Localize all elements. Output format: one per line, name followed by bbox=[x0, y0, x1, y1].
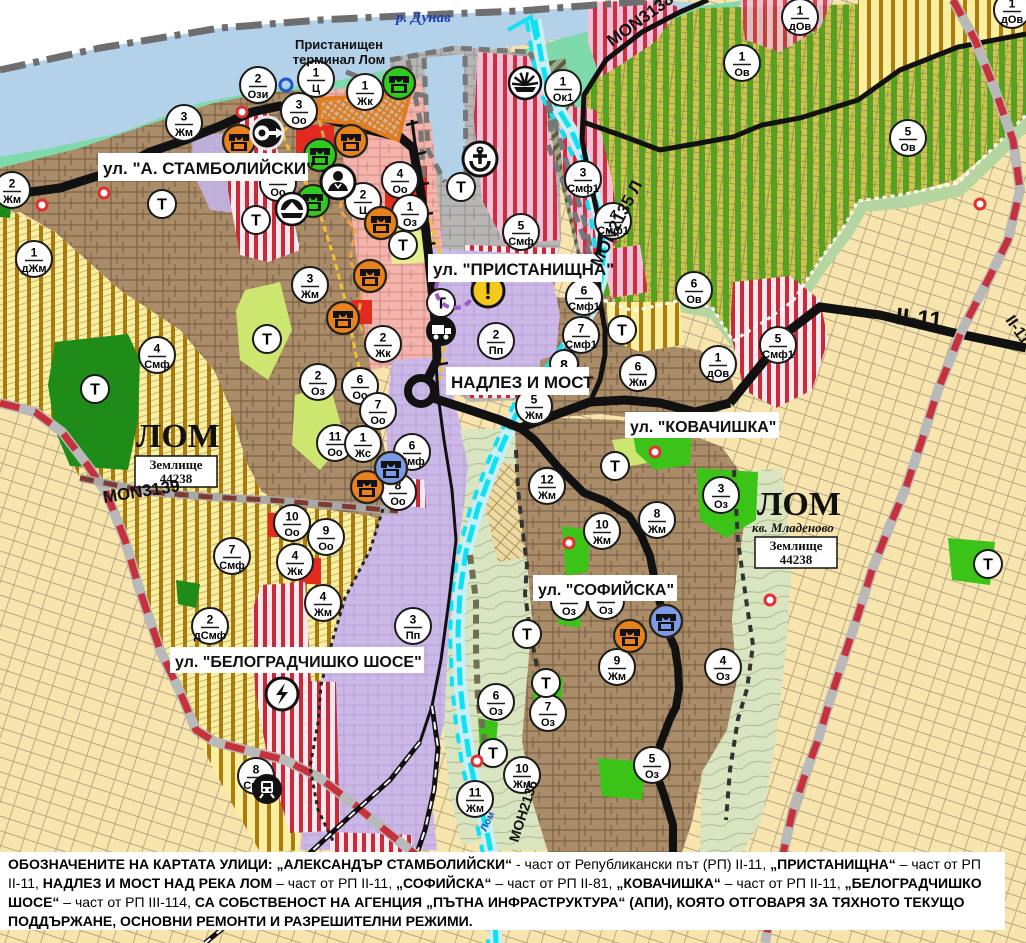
svg-text:5: 5 bbox=[905, 125, 912, 139]
svg-text:5: 5 bbox=[775, 332, 782, 346]
svg-text:2: 2 bbox=[315, 369, 322, 383]
svg-text:3: 3 bbox=[307, 272, 314, 286]
svg-text:11: 11 bbox=[329, 430, 342, 444]
svg-text:3: 3 bbox=[296, 98, 303, 112]
svg-text:2: 2 bbox=[380, 331, 387, 345]
svg-text:1: 1 bbox=[360, 431, 367, 445]
svg-text:4: 4 bbox=[397, 167, 404, 181]
svg-text:1: 1 bbox=[739, 50, 746, 64]
svg-text:Землище: Землище bbox=[149, 457, 202, 472]
svg-text:Жм: Жм bbox=[313, 607, 332, 619]
svg-text:ОБОЗНАЧЕНИТЕ НА КАРТАТА УЛИЦИ:: ОБОЗНАЧЕНИТЕ НА КАРТАТА УЛИЦИ: „АЛЕКСАНД… bbox=[8, 855, 981, 872]
svg-text:дОв: дОв bbox=[789, 21, 812, 33]
svg-text:Т: Т bbox=[456, 180, 466, 197]
svg-text:Смф1: Смф1 bbox=[568, 301, 600, 313]
svg-text:Ц: Ц bbox=[312, 83, 320, 95]
svg-text:6: 6 bbox=[635, 360, 642, 374]
svg-text:Пп: Пп bbox=[489, 345, 504, 357]
svg-text:9: 9 bbox=[323, 524, 330, 538]
svg-text:7: 7 bbox=[578, 322, 585, 336]
svg-text:ул. "БЕЛОГРАДЧИШКО ШОСЕ": ул. "БЕЛОГРАДЧИШКО ШОСЕ" bbox=[175, 654, 422, 671]
svg-text:Т: Т bbox=[398, 238, 408, 255]
svg-text:10: 10 bbox=[595, 518, 609, 532]
svg-text:Оз: Оз bbox=[489, 706, 504, 718]
svg-text:2: 2 bbox=[9, 177, 16, 191]
svg-text:1: 1 bbox=[31, 246, 38, 260]
svg-text:Оо: Оо bbox=[327, 447, 343, 459]
svg-text:Жм: Жм bbox=[174, 127, 193, 139]
svg-text:7: 7 bbox=[545, 700, 552, 714]
svg-text:Т: Т bbox=[251, 213, 261, 230]
svg-text:1: 1 bbox=[313, 66, 320, 80]
svg-text:Смф1: Смф1 bbox=[567, 183, 599, 195]
svg-text:6: 6 bbox=[691, 277, 698, 291]
svg-text:Оо: Оо bbox=[291, 115, 307, 127]
svg-text:1: 1 bbox=[560, 75, 567, 89]
svg-text:2: 2 bbox=[493, 328, 500, 342]
svg-text:1: 1 bbox=[715, 351, 722, 365]
svg-text:Оз: Оз bbox=[311, 386, 326, 398]
svg-text:Жм: Жм bbox=[300, 289, 319, 301]
svg-text:Т: Т bbox=[522, 627, 532, 644]
svg-text:3: 3 bbox=[181, 110, 188, 124]
svg-text:Оз: Оз bbox=[403, 217, 418, 229]
svg-text:Смф: Смф bbox=[219, 560, 245, 572]
svg-text:Жм: Жм bbox=[524, 410, 543, 422]
svg-text:2: 2 bbox=[207, 613, 214, 627]
svg-text:Т: Т bbox=[610, 459, 620, 476]
svg-text:Жк: Жк bbox=[356, 96, 373, 108]
svg-text:7: 7 bbox=[375, 398, 382, 412]
svg-text:Жм: Жм bbox=[2, 194, 21, 206]
svg-text:II-11: II-11 bbox=[894, 303, 943, 335]
svg-text:1: 1 bbox=[407, 200, 414, 214]
svg-text:Ов: Ов bbox=[734, 67, 750, 79]
svg-text:Т: Т bbox=[983, 557, 993, 574]
svg-text:Оз: Оз bbox=[541, 717, 556, 729]
svg-text:Смф1: Смф1 bbox=[565, 339, 597, 351]
svg-text:ПОДДЪРЖАНЕ, ОСНОВНИ РЕМОНТИ И: ПОДДЪРЖАНЕ, ОСНОВНИ РЕМОНТИ И РАЗРЕШИТЕЛ… bbox=[8, 913, 473, 929]
svg-text:II-11, НАДЛЕЗ И МОСТ НАД РЕКА: II-11, НАДЛЕЗ И МОСТ НАД РЕКА ЛОМ – част… bbox=[8, 874, 982, 891]
svg-text:Ок1: Ок1 bbox=[553, 92, 573, 104]
svg-text:кв. Младеново: кв. Младеново bbox=[752, 520, 834, 535]
svg-text:р. Дунав: р. Дунав bbox=[394, 10, 451, 26]
svg-text:Т: Т bbox=[262, 332, 272, 349]
svg-text:1: 1 bbox=[362, 79, 369, 93]
svg-text:3: 3 bbox=[410, 613, 417, 627]
svg-text:Оо: Оо bbox=[392, 184, 408, 196]
svg-text:6: 6 bbox=[409, 439, 416, 453]
svg-text:Жм: Жм bbox=[647, 524, 666, 536]
svg-text:Оо: Оо bbox=[318, 541, 334, 553]
svg-text:6: 6 bbox=[581, 284, 588, 298]
svg-text:Жм: Жм bbox=[592, 535, 611, 547]
svg-text:Т: Т bbox=[157, 197, 167, 214]
svg-text:8: 8 bbox=[253, 763, 260, 777]
svg-text:3: 3 bbox=[580, 166, 587, 180]
svg-text:Смф: Смф bbox=[508, 236, 534, 248]
svg-text:4: 4 bbox=[292, 549, 299, 563]
svg-text:5: 5 bbox=[649, 752, 656, 766]
svg-text:1: 1 bbox=[1009, 0, 1016, 11]
svg-text:Жк: Жк bbox=[286, 566, 303, 578]
svg-text:8: 8 bbox=[654, 507, 661, 521]
svg-text:11: 11 bbox=[469, 786, 482, 800]
svg-text:Оз: Оз bbox=[714, 499, 729, 511]
svg-text:ул. "ПРИСТАНИЩНА": ул. "ПРИСТАНИЩНА" bbox=[433, 260, 614, 279]
svg-text:НАДЛЕЗ И МОСТ: НАДЛЕЗ И МОСТ bbox=[451, 373, 594, 392]
svg-text:Оз: Оз bbox=[645, 769, 660, 781]
svg-text:6: 6 bbox=[493, 689, 500, 703]
svg-text:ШОСЕ“ – част от РП III-114, СА: ШОСЕ“ – част от РП III-114, СА СОБСТВЕНО… bbox=[8, 894, 965, 910]
svg-text:Жм: Жм bbox=[465, 803, 484, 815]
svg-text:Пп: Пп bbox=[406, 630, 421, 642]
svg-text:дЖм: дЖм bbox=[21, 263, 46, 275]
svg-text:Жм: Жм bbox=[607, 671, 626, 683]
svg-text:10: 10 bbox=[515, 762, 529, 776]
svg-text:4: 4 bbox=[154, 342, 161, 356]
svg-text:Оз: Оз bbox=[716, 671, 731, 683]
svg-text:ул. "А. СТАМБОЛИЙСКИ": ул. "А. СТАМБОЛИЙСКИ" bbox=[103, 159, 314, 178]
svg-text:ЛОМ: ЛОМ bbox=[757, 486, 841, 523]
svg-text:7: 7 bbox=[229, 543, 236, 557]
svg-text:44238: 44238 bbox=[780, 552, 813, 567]
svg-text:Т: Т bbox=[617, 323, 627, 340]
svg-text:10: 10 bbox=[285, 510, 299, 524]
svg-text:Пристанищен: Пристанищен bbox=[295, 37, 383, 52]
svg-text:дСмф: дСмф bbox=[194, 630, 227, 642]
svg-text:Оо: Оо bbox=[284, 527, 300, 539]
svg-text:3: 3 bbox=[718, 482, 725, 496]
svg-text:!: ! bbox=[484, 278, 492, 305]
svg-text:Землище: Землище bbox=[769, 538, 822, 553]
svg-text:Оо: Оо bbox=[370, 415, 386, 427]
svg-text:терминал Лом: терминал Лом bbox=[293, 52, 385, 67]
svg-text:дОв: дОв bbox=[1001, 14, 1024, 26]
svg-text:Смф1: Смф1 bbox=[762, 349, 794, 361]
svg-text:2: 2 bbox=[360, 188, 367, 202]
svg-text:Т: Т bbox=[90, 382, 100, 399]
svg-text:ул. "СОФИЙСКА": ул. "СОФИЙСКА" bbox=[538, 580, 674, 599]
svg-text:Оо: Оо bbox=[390, 496, 406, 508]
svg-text:ЛОМ: ЛОМ bbox=[136, 418, 220, 455]
svg-text:Оз: Оз bbox=[599, 605, 614, 617]
svg-text:Оз: Оз bbox=[562, 606, 577, 618]
svg-text:12: 12 bbox=[540, 473, 554, 487]
svg-text:Ов: Ов bbox=[686, 294, 702, 306]
svg-text:5: 5 bbox=[518, 219, 525, 233]
svg-text:2: 2 bbox=[255, 72, 262, 86]
svg-text:Жк: Жк bbox=[374, 348, 391, 360]
svg-text:дОв: дОв bbox=[707, 368, 730, 380]
svg-text:ул. "КОВАЧИШКА": ул. "КОВАЧИШКА" bbox=[630, 419, 776, 436]
svg-text:Ози: Ози bbox=[248, 89, 269, 101]
svg-text:Т: Т bbox=[541, 676, 551, 693]
svg-text:Т: Т bbox=[488, 746, 498, 763]
svg-text:Ов: Ов bbox=[900, 142, 916, 154]
svg-text:Жм: Жм bbox=[628, 377, 647, 389]
svg-text:9: 9 bbox=[614, 654, 621, 668]
svg-text:4: 4 bbox=[720, 654, 727, 668]
svg-text:6: 6 bbox=[357, 373, 364, 387]
svg-text:Смф: Смф bbox=[144, 359, 170, 371]
svg-text:1: 1 bbox=[797, 4, 804, 18]
svg-text:4: 4 bbox=[320, 590, 327, 604]
svg-text:Жм: Жм bbox=[537, 490, 556, 502]
svg-text:Жс: Жс bbox=[354, 448, 371, 460]
